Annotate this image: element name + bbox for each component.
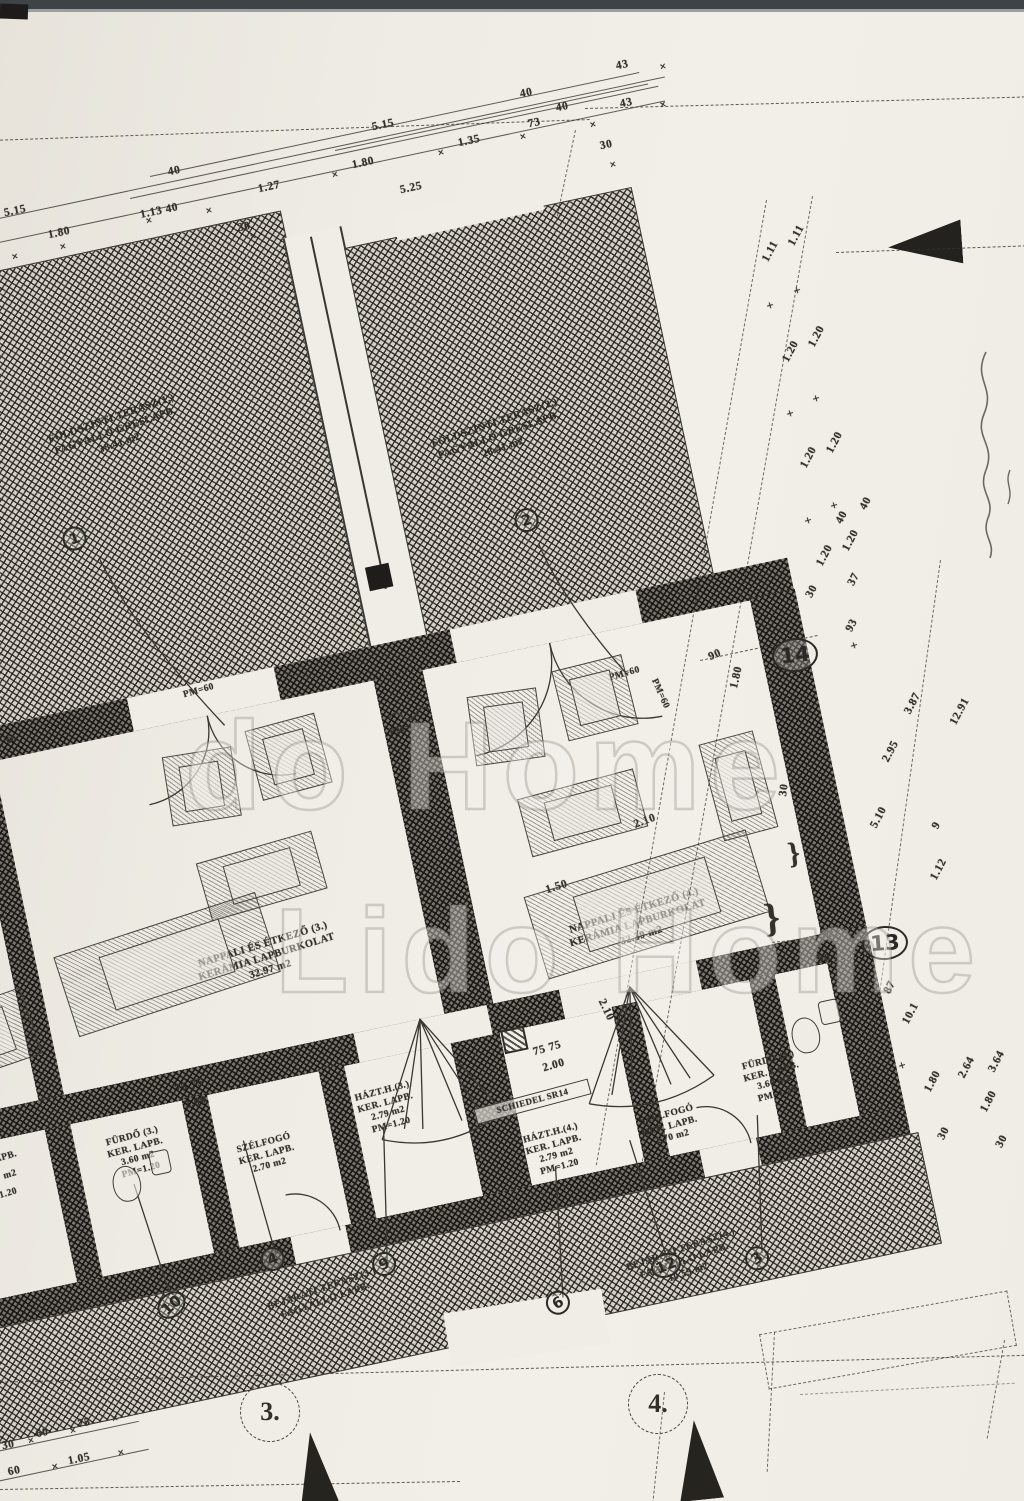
plot-boundary-line	[0, 1481, 460, 1490]
scanned-floor-plan-page: FÖLDSZINTI TERASZ(1.) FAGYÁLLÓ GRESLAPB.…	[0, 0, 1024, 1501]
furniture-block	[53, 892, 281, 1037]
text-label: ×	[659, 61, 668, 74]
text-label: 1.20	[0, 1186, 19, 1202]
watermark-text: Lido Home	[275, 882, 985, 1020]
dim-line	[0, 1449, 149, 1483]
scanner-edge-band	[0, 0, 1024, 9]
bathroom-fixture	[109, 1163, 144, 1204]
divider-bath3	[181, 1093, 240, 1255]
text-label: FÜRDŐ (3.) KER. LAPB. 3.60 m2 PM=1.20	[80, 1118, 194, 1190]
text-label: 2.00	[542, 1057, 567, 1074]
furniture-inner	[0, 1006, 17, 1071]
leader-circle-4	[243, 1139, 275, 1256]
bathroom-fixture	[148, 1149, 173, 1177]
watermark-text: do Home	[185, 695, 790, 838]
furniture-inner	[99, 919, 236, 1011]
text-label: 1.80	[729, 665, 745, 690]
flue-block	[365, 563, 393, 591]
scanner-edge-line	[0, 9, 1024, 12]
text-label: PM=60	[608, 665, 642, 685]
text-label: LAPB.	[0, 1149, 19, 1168]
text-label: SZÉLFOGÓ KER. LAPB. 2.70 m2	[208, 1124, 325, 1186]
scan-corner-artifact	[0, 4, 28, 20]
survey-marker-triangle	[672, 1418, 724, 1501]
text-label: 75 75	[532, 1040, 563, 1059]
party-wall-far-left	[0, 759, 108, 1309]
text-label: 43	[615, 59, 630, 73]
bathroom-fixture	[788, 1015, 823, 1056]
text-label: m2	[2, 1168, 18, 1183]
terrain-dash-curve	[800, 1383, 1015, 1395]
divider-szelfogo3	[318, 1064, 377, 1226]
plot-boundary-vline	[652, 1392, 665, 1501]
